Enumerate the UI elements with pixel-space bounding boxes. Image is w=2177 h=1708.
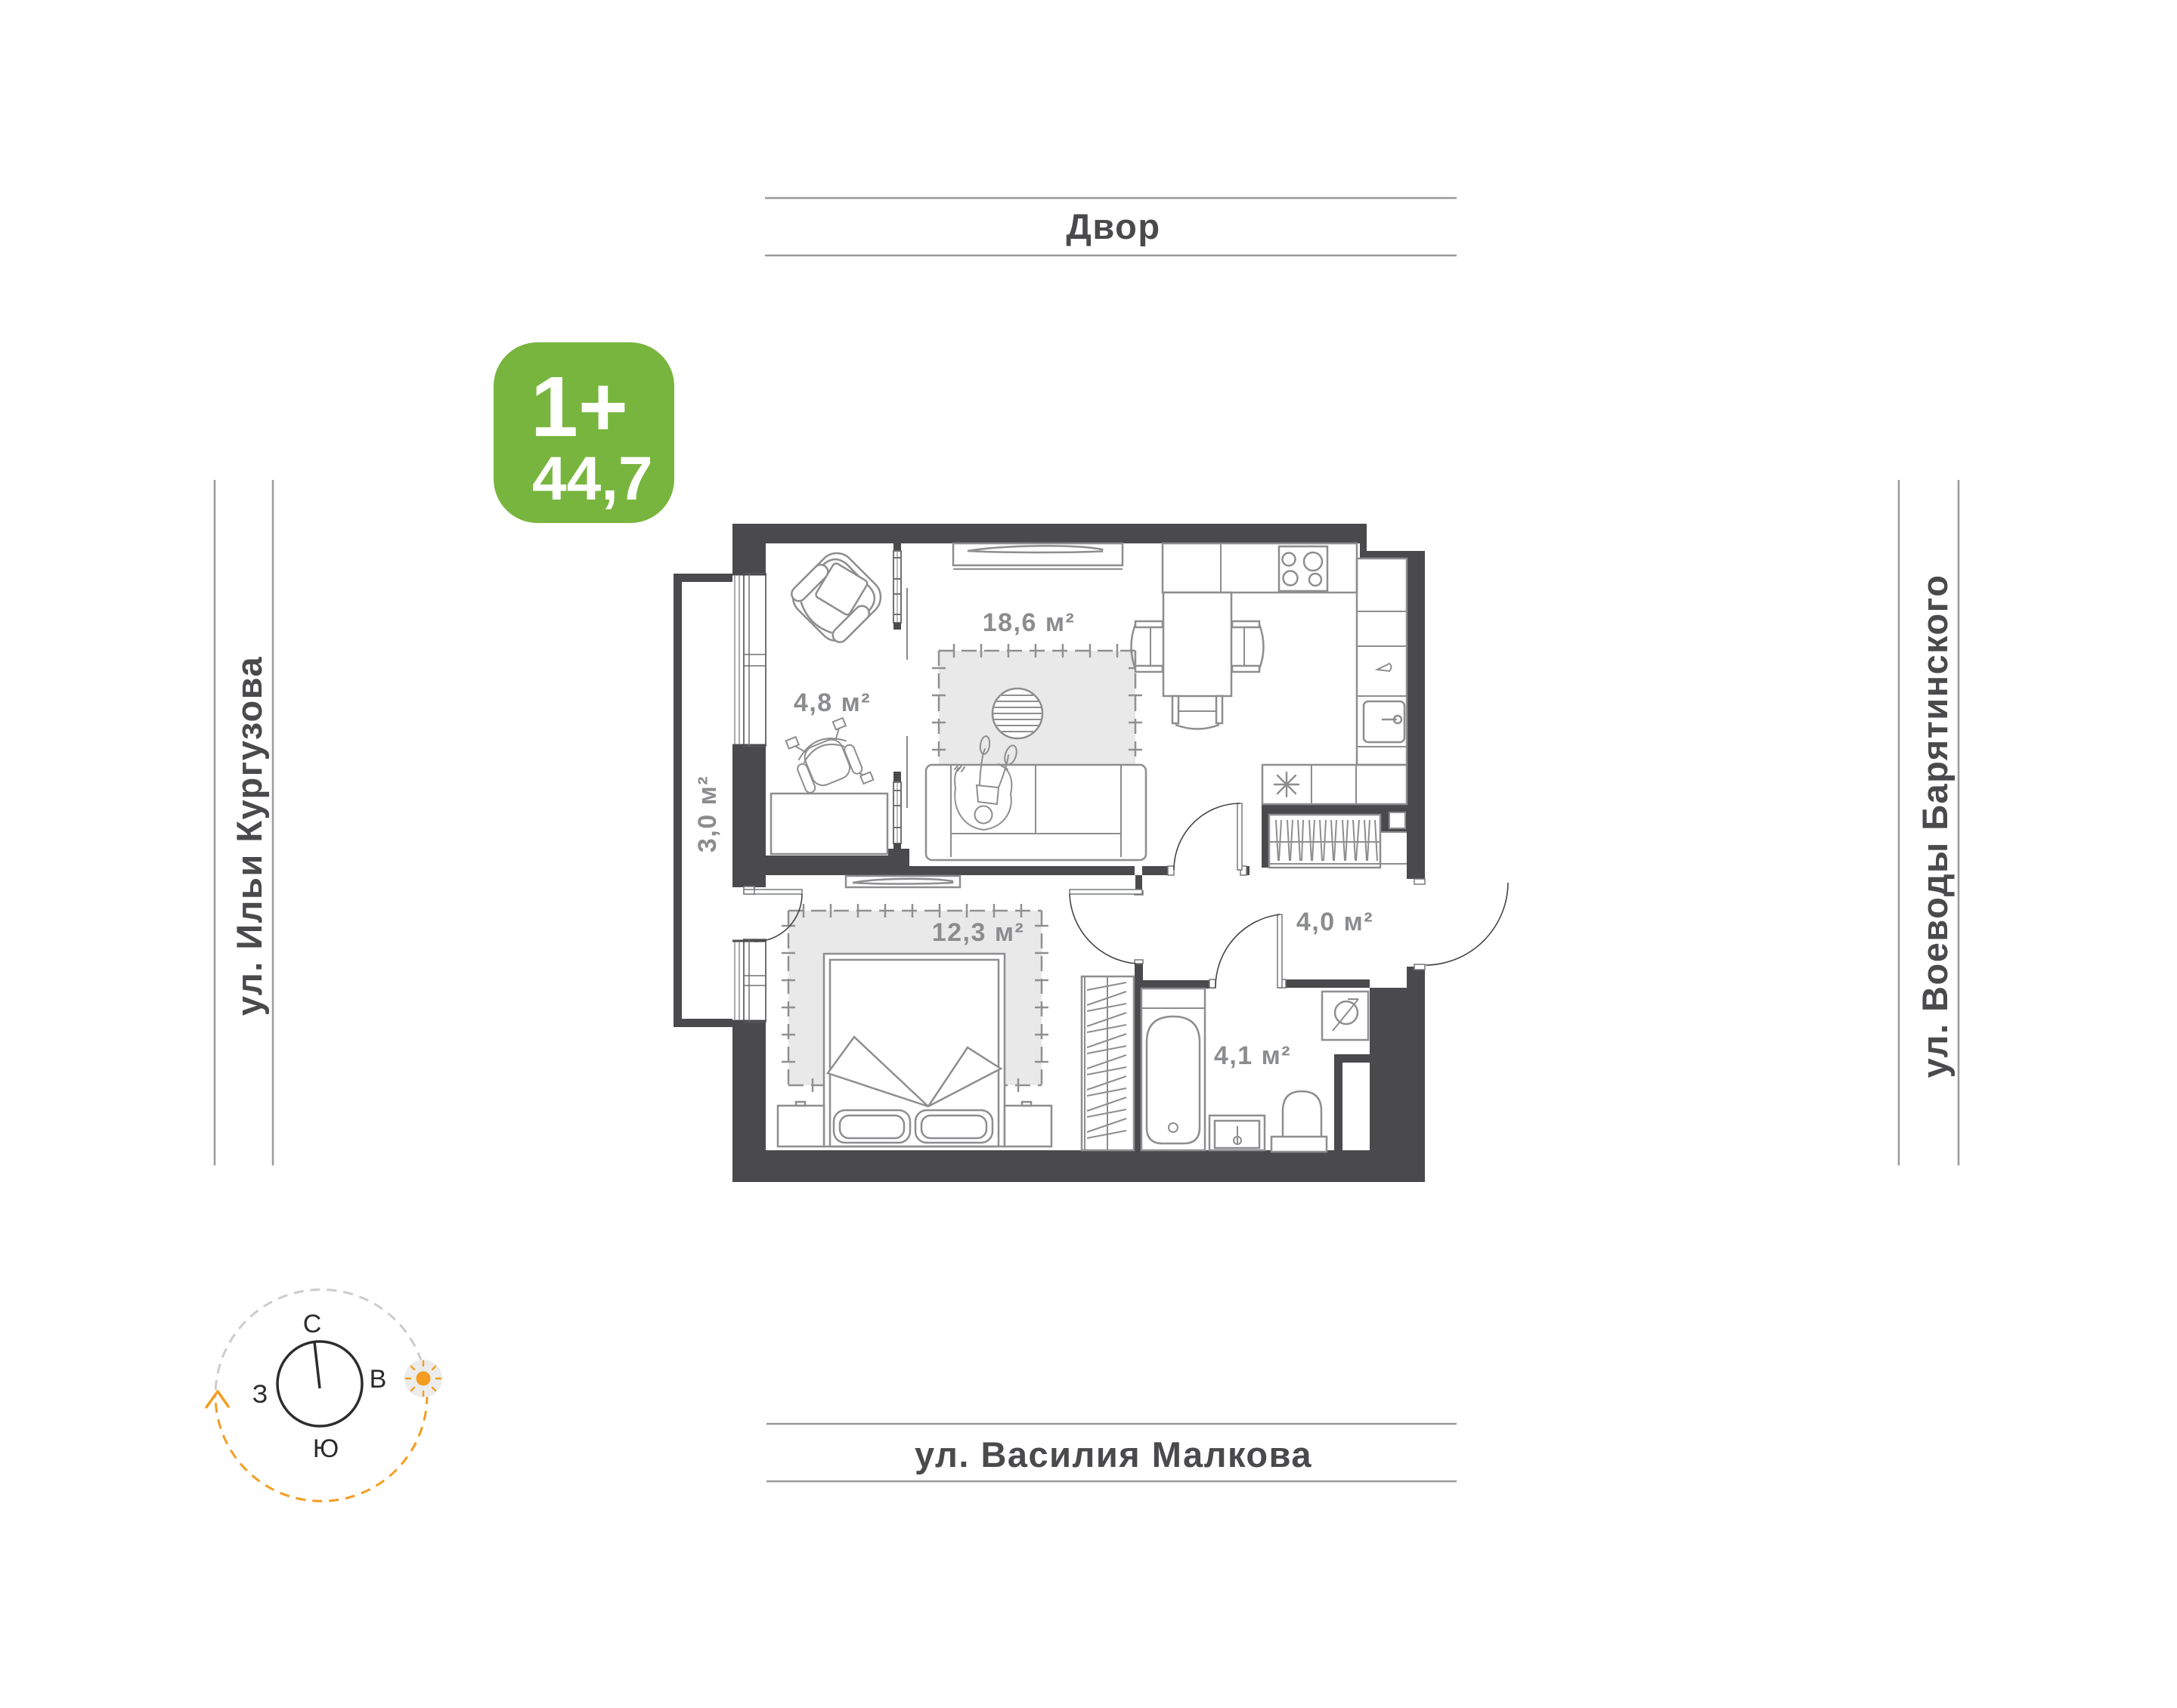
- svg-text:1+: 1+: [531, 359, 628, 454]
- svg-text:ул. Воеводы Барятинского: ул. Воеводы Барятинского: [1915, 574, 1955, 1078]
- svg-text:ул. Василия Малкова: ул. Василия Малкова: [915, 1434, 1312, 1474]
- svg-text:З: З: [252, 1380, 268, 1409]
- svg-text:4,0 м²: 4,0 м²: [1296, 908, 1373, 936]
- svg-text:3,0 м²: 3,0 м²: [693, 775, 722, 852]
- svg-text:ул. Ильи Кургузова: ул. Ильи Кургузова: [229, 656, 269, 1016]
- svg-text:18,6 м²: 18,6 м²: [983, 608, 1076, 637]
- svg-text:44,7: 44,7: [532, 444, 653, 513]
- svg-text:4,8 м²: 4,8 м²: [794, 688, 871, 717]
- svg-text:В: В: [370, 1365, 387, 1394]
- svg-text:4,1 м²: 4,1 м²: [1214, 1041, 1291, 1070]
- svg-text:12,3 м²: 12,3 м²: [932, 918, 1025, 947]
- svg-text:Двор: Двор: [1066, 206, 1160, 246]
- svg-text:Ю: Ю: [313, 1434, 339, 1463]
- svg-text:С: С: [303, 1310, 322, 1338]
